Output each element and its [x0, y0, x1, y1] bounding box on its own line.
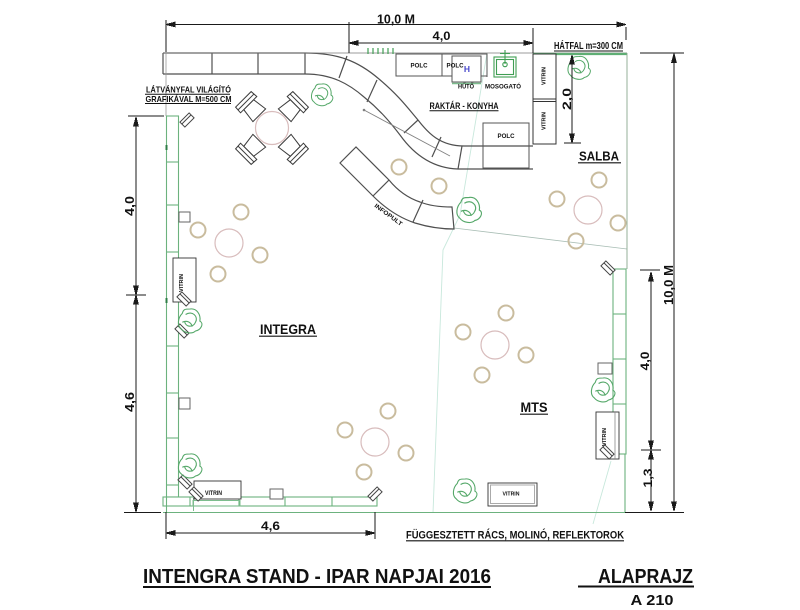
svg-text:2,0: 2,0: [560, 88, 574, 110]
svg-text:A 210: A 210: [631, 592, 674, 609]
svg-text:VITRIN: VITRIN: [542, 112, 548, 130]
svg-text:10,0 M: 10,0 M: [377, 12, 415, 27]
svg-text:POLC: POLC: [447, 64, 465, 70]
svg-text:4,0: 4,0: [122, 196, 137, 216]
svg-text:VITRIN: VITRIN: [503, 492, 520, 498]
svg-text:10,0 M: 10,0 M: [661, 265, 676, 305]
svg-text:POLC: POLC: [498, 134, 516, 140]
svg-text:VITRIN: VITRIN: [542, 67, 548, 85]
svg-text:4,6: 4,6: [122, 392, 137, 412]
svg-text:HŰTŐ: HŰTŐ: [458, 84, 474, 91]
svg-text:GRAFIKÁVAL M=500 CM: GRAFIKÁVAL M=500 CM: [146, 94, 232, 104]
svg-text:POLC: POLC: [411, 64, 429, 70]
svg-text:MTS: MTS: [521, 399, 548, 415]
svg-text:VITRIN: VITRIN: [205, 491, 222, 497]
svg-text:INTENGRA STAND - IPAR NAPJAI 2: INTENGRA STAND - IPAR NAPJAI 2016: [143, 566, 491, 588]
svg-text:4,6: 4,6: [261, 519, 280, 533]
svg-text:4,0: 4,0: [433, 31, 451, 43]
svg-text:4,0: 4,0: [638, 351, 652, 370]
svg-text:1,3: 1,3: [641, 468, 655, 487]
svg-text:HÁTFAL m=300 CM: HÁTFAL m=300 CM: [554, 39, 623, 52]
svg-text:INTEGRA: INTEGRA: [260, 321, 316, 337]
svg-text:MOSOGATÓ: MOSOGATÓ: [485, 83, 521, 91]
svg-text:VITRIN: VITRIN: [179, 274, 185, 292]
svg-text:H: H: [464, 64, 470, 74]
svg-text:ALAPRAJZ: ALAPRAJZ: [598, 566, 693, 588]
svg-text:SALBA: SALBA: [579, 150, 619, 164]
svg-text:VITRIN: VITRIN: [602, 428, 608, 446]
svg-text:FÜGGESZTETT RÁCS, MOLINÓ, REFL: FÜGGESZTETT RÁCS, MOLINÓ, REFLEKTOROK: [406, 529, 624, 542]
